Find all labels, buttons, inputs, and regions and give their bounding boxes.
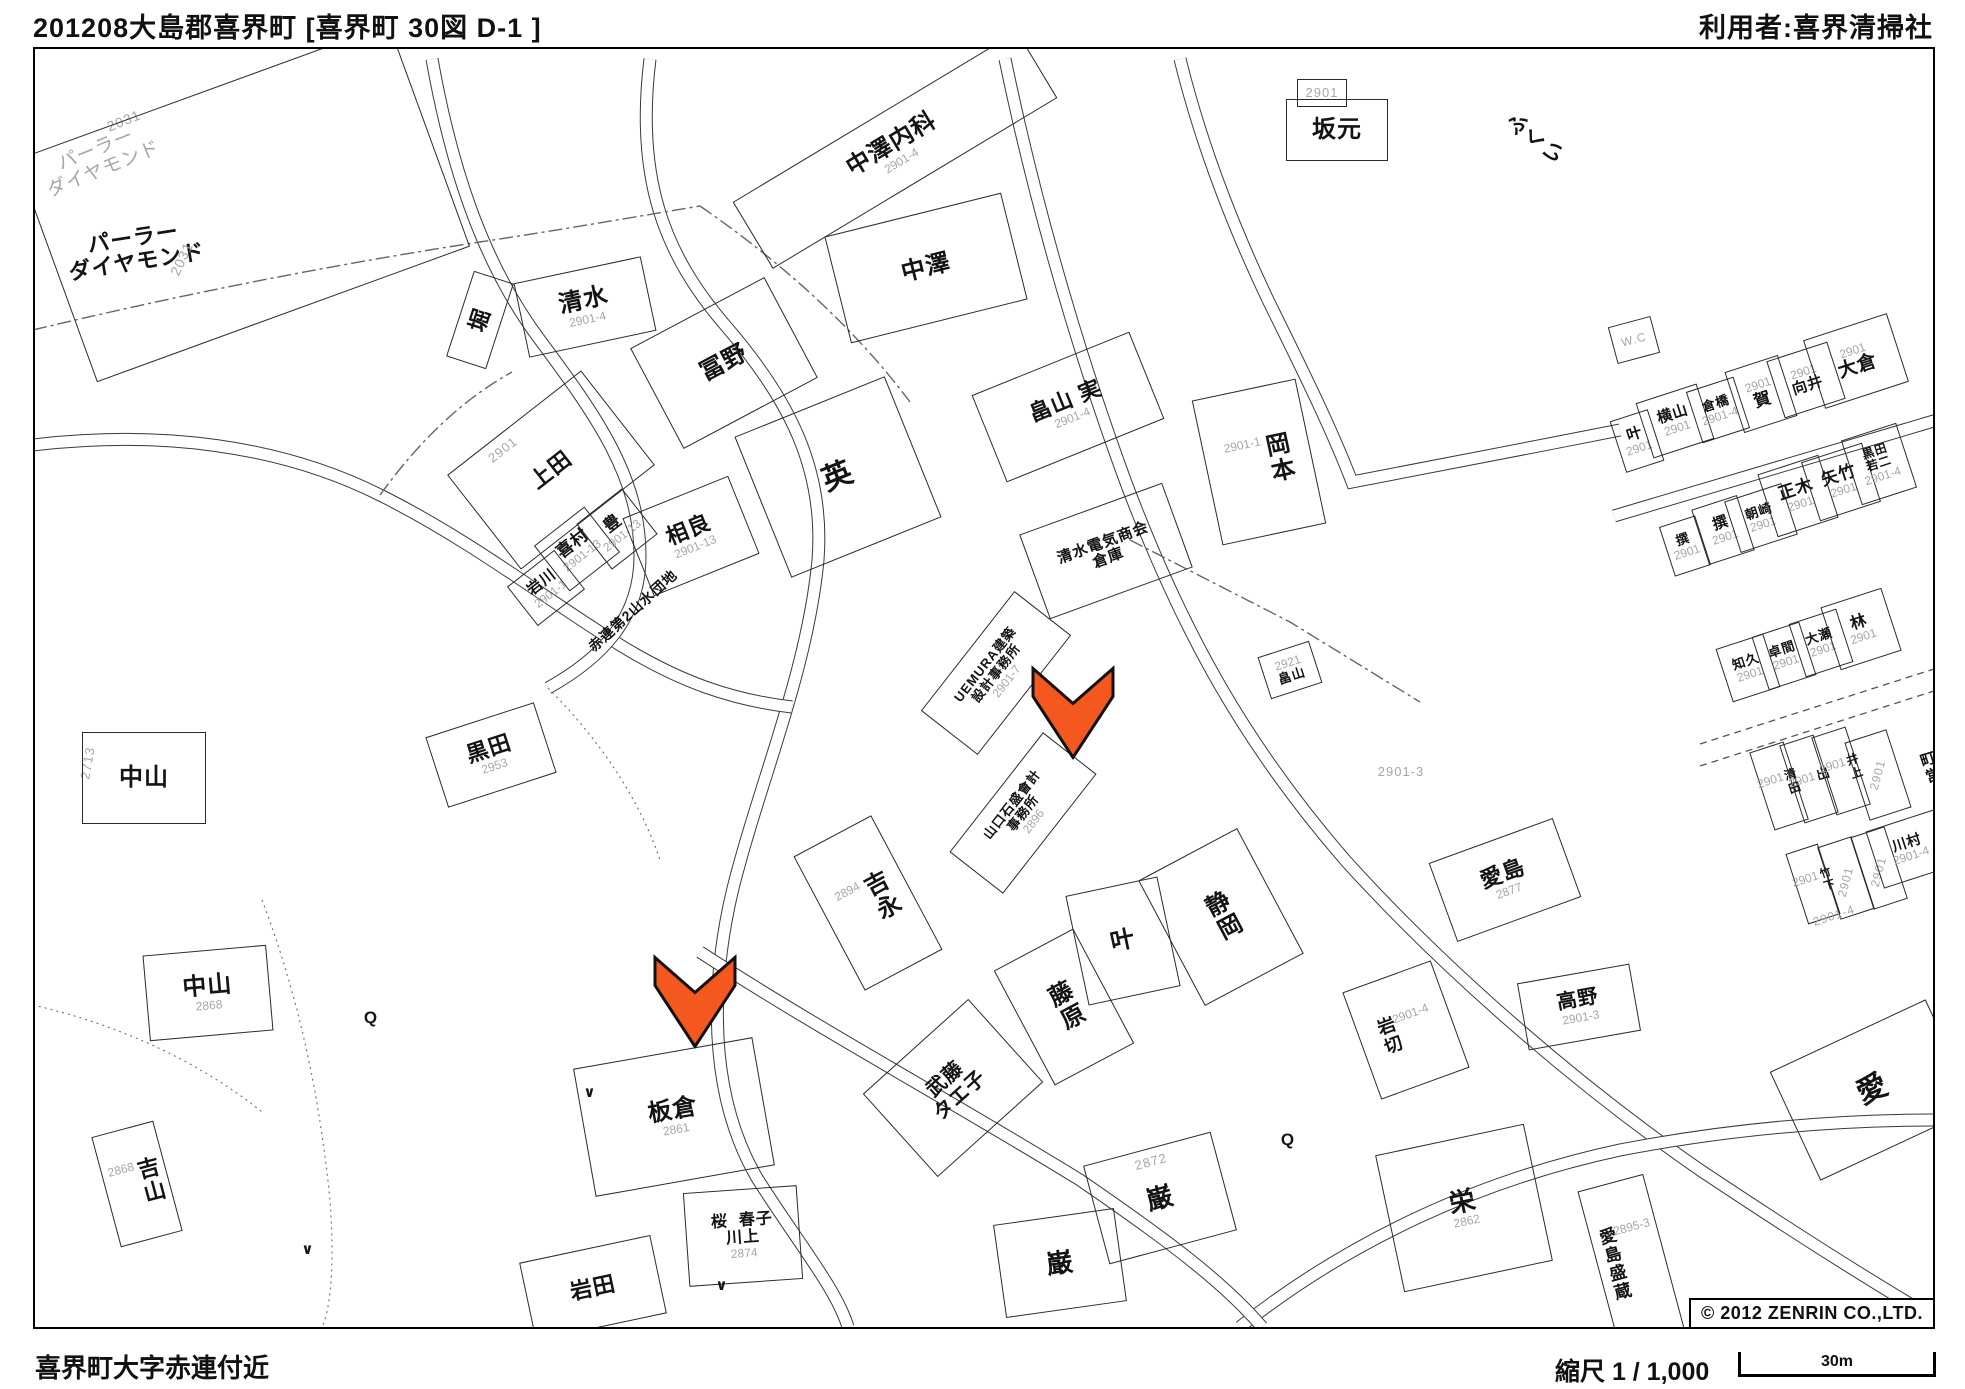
map-label: 中山2868 (181, 971, 234, 1014)
scale-bar: 30m (1738, 1352, 1936, 1377)
map-label: 2901 (1306, 86, 1339, 100)
map-area-name: 喜界町大字赤連付近 (35, 1348, 269, 1385)
building-outline (33, 47, 470, 382)
scale-bar-label: 30m (1821, 1353, 1853, 1370)
map-labels-layer: パーラーダイヤモンド2031パーラーダイヤモンド2031堀清水2901-4冨野中… (35, 49, 1933, 1327)
map-label: ふくい (1500, 110, 1568, 170)
map-label: 坂元 (1312, 117, 1362, 143)
map-label: ∨ (583, 1085, 596, 1101)
zenrin-map-page: 201208大島郡喜界町 [喜界町 30図 D-1 ] 利用者:喜界清掃社 (0, 0, 1965, 1389)
building-outline (1770, 999, 1935, 1180)
map-label: ∨ (301, 1242, 314, 1258)
map-label: 高野2901-3 (1555, 986, 1602, 1028)
map-label: 巌 (1045, 1247, 1076, 1279)
copyright-notice: © 2012 ZENRIN CO.,LTD. (1689, 1298, 1935, 1329)
map-label: 桜 春子川上2874 (710, 1210, 775, 1262)
map-scale-text: 縮尺 1 / 1,000 (1555, 1352, 1709, 1388)
map-label: Q (364, 1009, 378, 1027)
map-label: ∨ (715, 1278, 728, 1294)
map-user-title: 利用者:喜界清掃社 (1699, 6, 1933, 45)
map-canvas[interactable]: パーラーダイヤモンド2031パーラーダイヤモンド2031堀清水2901-4冨野中… (33, 47, 1935, 1329)
map-sheet-title: 201208大島郡喜界町 [喜界町 30図 D-1 ] (33, 6, 542, 45)
map-label: Q (1281, 1131, 1295, 1149)
map-label: 町営 (1916, 749, 1935, 786)
map-label: 2901-3 (1378, 765, 1424, 779)
map-label: 叶 (1108, 926, 1138, 957)
destination-arrow-icon (653, 952, 737, 1053)
map-label: 赤連第2山水団地 (586, 567, 681, 654)
map-label: 中山 (119, 765, 169, 791)
destination-arrow-icon (1031, 663, 1115, 764)
